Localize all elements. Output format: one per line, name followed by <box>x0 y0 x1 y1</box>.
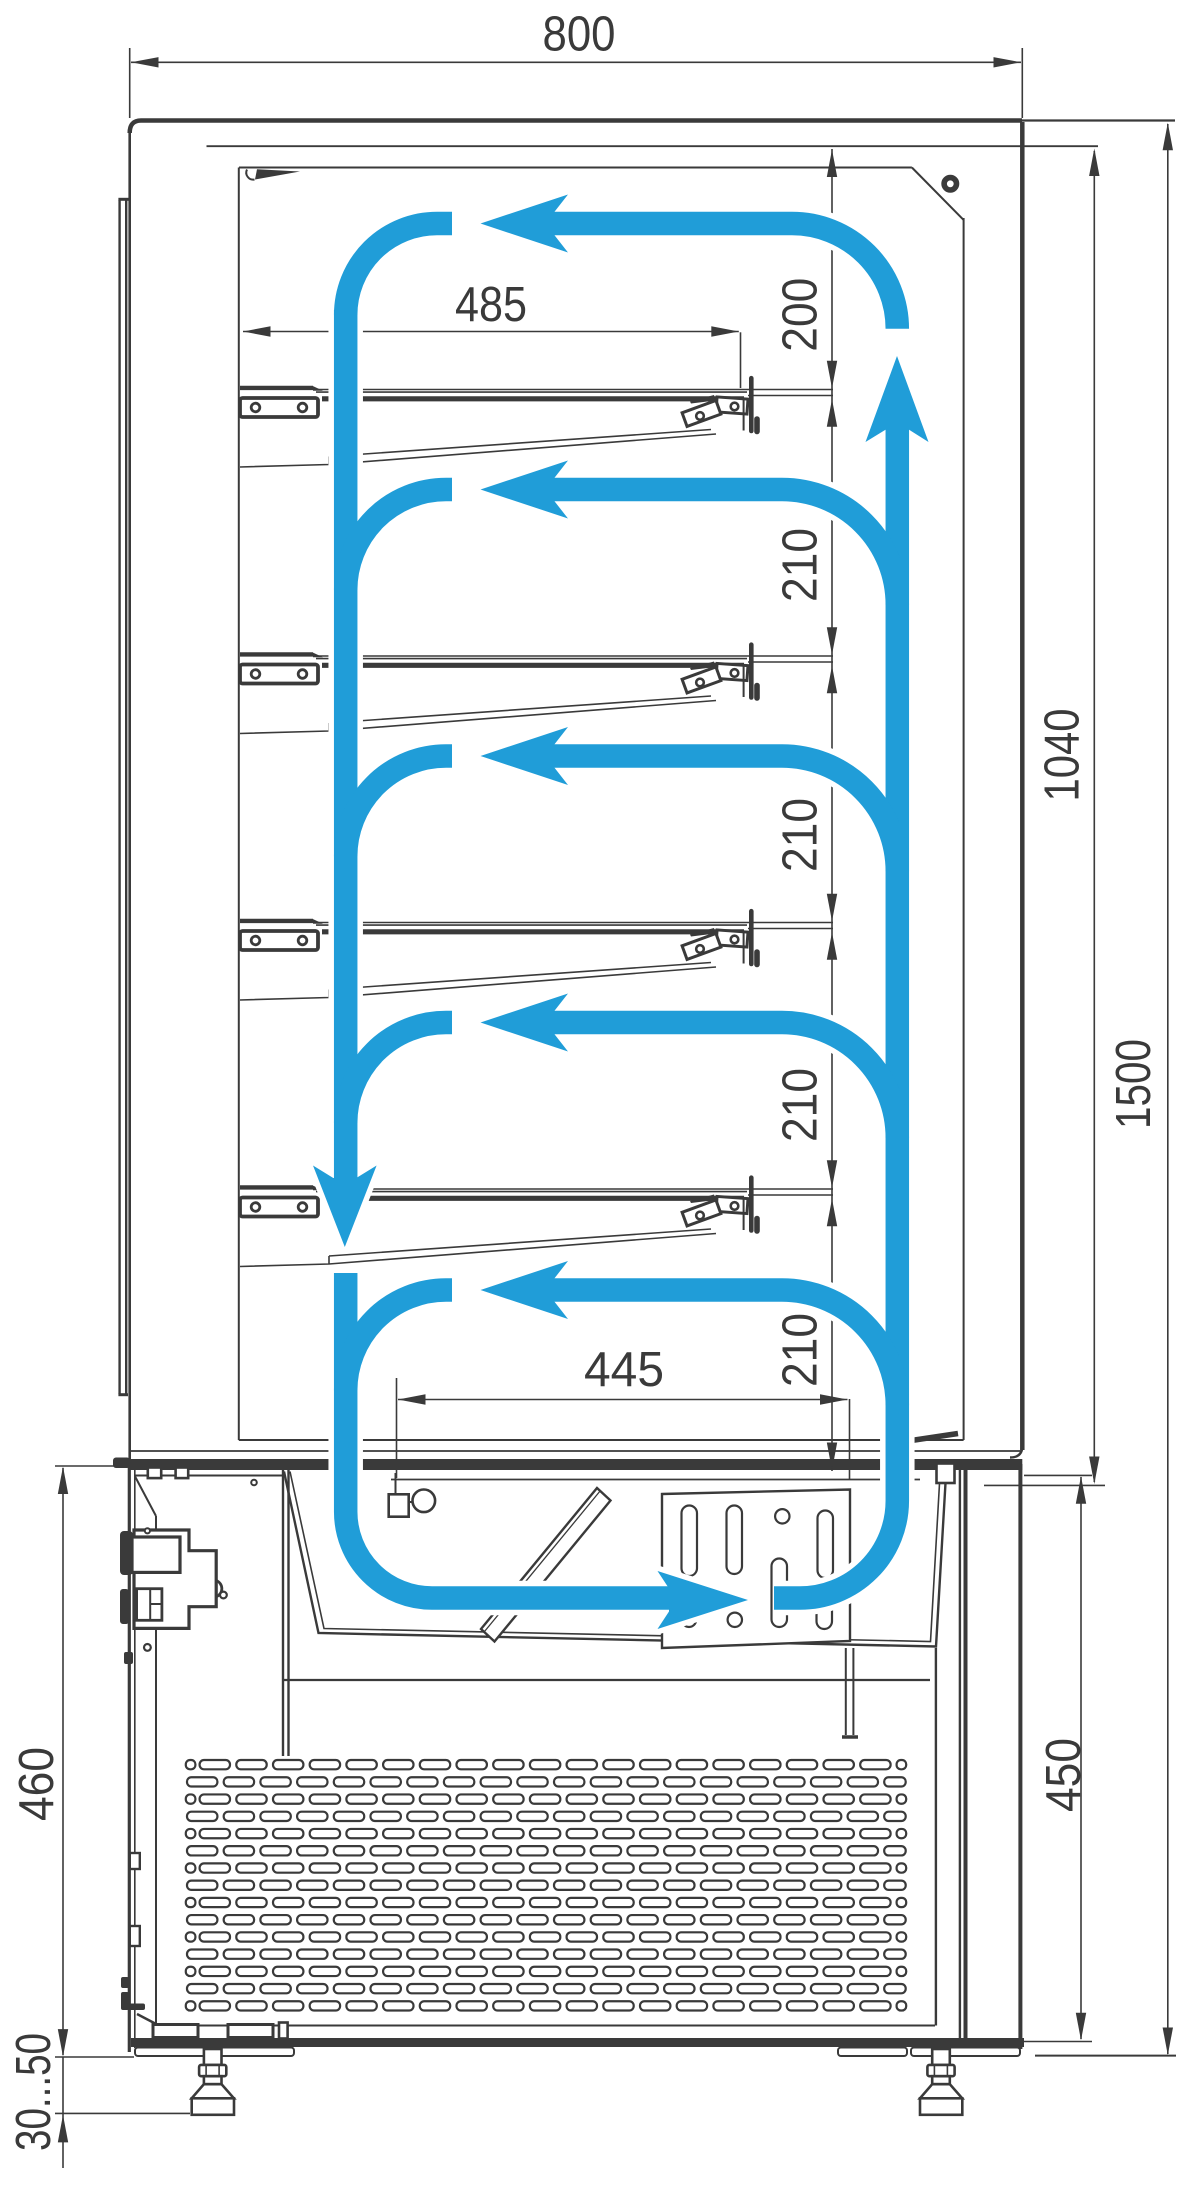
svg-text:460: 460 <box>10 1747 64 1821</box>
svg-text:445: 445 <box>584 1343 664 1397</box>
svg-text:1040: 1040 <box>1036 709 1090 802</box>
svg-text:210: 210 <box>773 528 827 602</box>
svg-text:210: 210 <box>773 1068 827 1142</box>
svg-text:485: 485 <box>455 278 527 332</box>
svg-text:450: 450 <box>1037 1738 1091 1812</box>
svg-text:1500: 1500 <box>1107 1039 1161 1129</box>
svg-text:210: 210 <box>773 798 827 872</box>
svg-text:30...50: 30...50 <box>7 2033 61 2151</box>
svg-text:210: 210 <box>773 1313 827 1387</box>
svg-text:200: 200 <box>773 278 827 352</box>
svg-text:800: 800 <box>543 7 616 61</box>
